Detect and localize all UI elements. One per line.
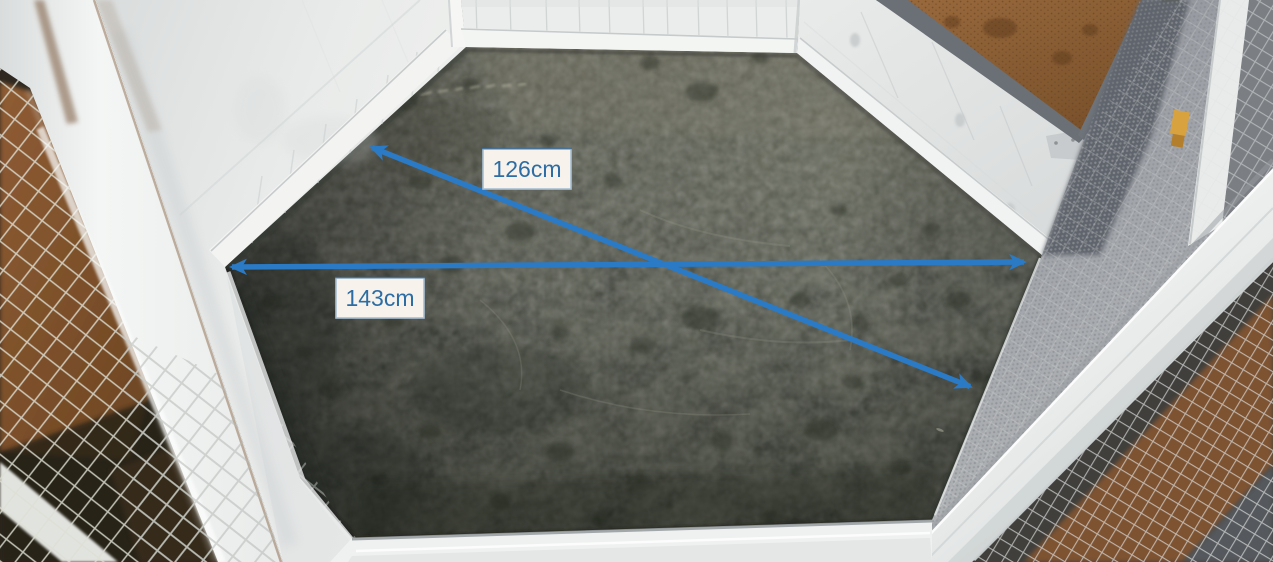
svg-text:143cm: 143cm	[345, 285, 414, 311]
svg-text:126cm: 126cm	[492, 156, 561, 182]
